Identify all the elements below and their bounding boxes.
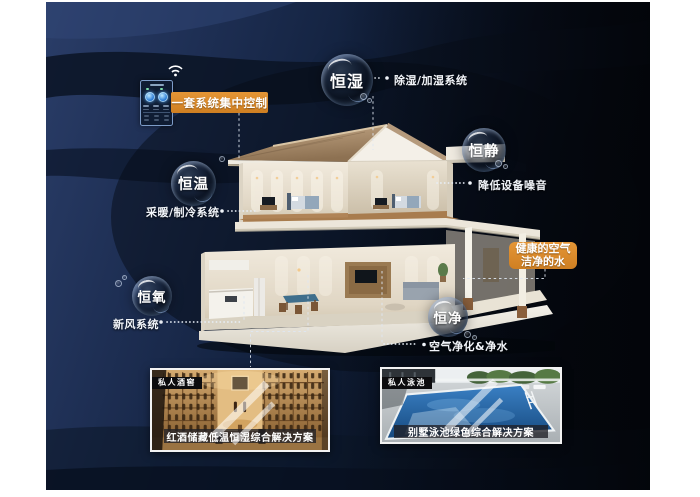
mini-bubble bbox=[495, 160, 502, 167]
mini-bubble bbox=[360, 93, 367, 100]
pool-card: 私人泳池 别墅泳池绿色综合解决方案 bbox=[380, 367, 562, 444]
label-fresh-air: 新风系统 bbox=[113, 316, 159, 332]
smart-home-poster: 一套系统集中控制 恒湿 恒静 恒温 恒氧 恒净 除湿/加湿系统 降低设备噪音 采… bbox=[0, 0, 700, 497]
central-control-text: 一套系统集中控制 bbox=[172, 95, 268, 111]
healthy-air-water-box: 健康的空气 洁净的水 bbox=[509, 242, 577, 269]
highlight-line2: 洁净的水 bbox=[521, 256, 565, 269]
mini-bubble bbox=[503, 164, 508, 169]
label-air-water-purification: 空气净化&净水 bbox=[429, 338, 508, 354]
panel-reading-left bbox=[146, 88, 149, 90]
label-heating-cooling: 采暖/制冷系统 bbox=[146, 204, 220, 220]
bubble-humidity-label: 恒湿 bbox=[330, 68, 364, 92]
bubble-oxygen: 恒氧 bbox=[132, 276, 172, 316]
bubble-oxygen-label: 恒氧 bbox=[138, 286, 167, 306]
bubble-temperature: 恒温 bbox=[171, 161, 216, 206]
humidity-knob bbox=[158, 92, 168, 102]
wifi-icon bbox=[167, 63, 184, 77]
mini-bubble bbox=[219, 156, 225, 162]
mini-bubble bbox=[367, 98, 372, 103]
label-noise-reduction: 降低设备噪音 bbox=[478, 177, 547, 193]
label-humidity-system: 除湿/加湿系统 bbox=[394, 72, 468, 88]
central-control-label: 一套系统集中控制 bbox=[171, 92, 268, 113]
watermark-logo bbox=[152, 370, 328, 450]
smart-control-panel bbox=[140, 80, 173, 126]
mini-bubble bbox=[115, 280, 122, 287]
wine-cellar-card: 私人酒窖 红酒储藏低温恒湿综合解决方案 bbox=[150, 368, 330, 452]
bubble-purity: 恒净 bbox=[428, 297, 468, 337]
bubble-purity-label: 恒净 bbox=[434, 307, 463, 327]
panel-header bbox=[150, 84, 164, 86]
temperature-knob bbox=[145, 92, 155, 102]
panel-reading-right bbox=[160, 88, 163, 90]
highlight-line1: 健康的空气 bbox=[516, 243, 571, 256]
mini-bubble bbox=[122, 275, 127, 280]
mini-bubble bbox=[464, 331, 471, 338]
bubble-temperature-label: 恒温 bbox=[178, 173, 209, 194]
bubble-quiet-label: 恒静 bbox=[469, 140, 500, 161]
watermark-logo bbox=[382, 369, 560, 442]
